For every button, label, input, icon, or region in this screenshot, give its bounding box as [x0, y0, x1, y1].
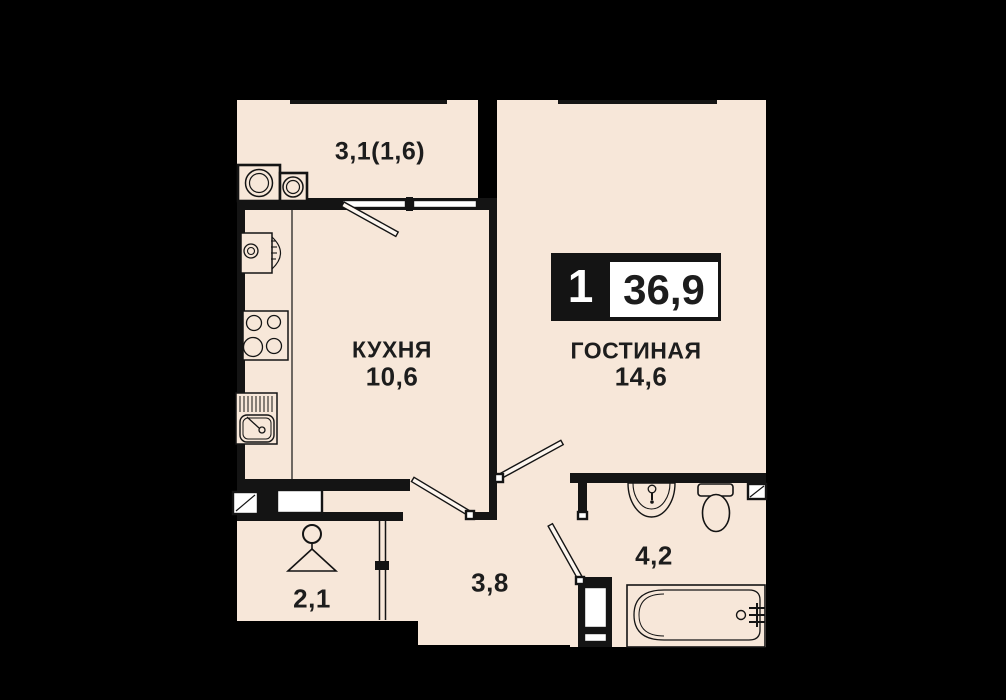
living-room-area-label: 14,6 [615, 362, 668, 393]
door-frame-tick [576, 577, 584, 584]
wall-segment [290, 100, 447, 104]
wardrobe-area-label: 2,1 [293, 584, 331, 615]
living-bathroom-wall [570, 473, 766, 483]
balcony-area-label: 3,1(1,6) [335, 138, 425, 167]
washer-icon [238, 165, 280, 201]
apartment-badge: 1 36,9 [551, 253, 721, 321]
window-mullion [406, 197, 413, 211]
door-frame-tick [578, 512, 587, 519]
fridge-icon [241, 233, 272, 273]
closet-niche [277, 490, 322, 513]
kitchen-living-wall [489, 198, 497, 519]
hallway-area-label: 3,8 [471, 568, 509, 599]
kitchen-area-label: 10,6 [366, 362, 419, 393]
basin-drain [650, 500, 654, 504]
floor-plan: 3,1(1,6) КУХНЯ 10,6 ГОСТИНАЯ 14,6 3,8 2,… [0, 0, 1006, 700]
floors [237, 100, 766, 647]
bathroom-area-label: 4,2 [635, 541, 673, 572]
wall-segment [258, 488, 277, 515]
door-frame-tick [495, 474, 503, 482]
living-room-name-label: ГОСТИНАЯ [571, 338, 702, 365]
stove-icon [243, 311, 288, 360]
toilet-bowl [703, 495, 730, 532]
door-frame-tick [466, 511, 474, 519]
kitchen-name-label: КУХНЯ [352, 337, 432, 364]
shaft-cell [584, 633, 607, 642]
total-area-badge: 36,9 [610, 262, 718, 317]
partition-tick [375, 561, 389, 570]
room-count-badge: 1 [551, 253, 610, 321]
balcony-window [413, 200, 477, 208]
wall-segment [558, 100, 717, 104]
shaft-cell [584, 587, 607, 628]
